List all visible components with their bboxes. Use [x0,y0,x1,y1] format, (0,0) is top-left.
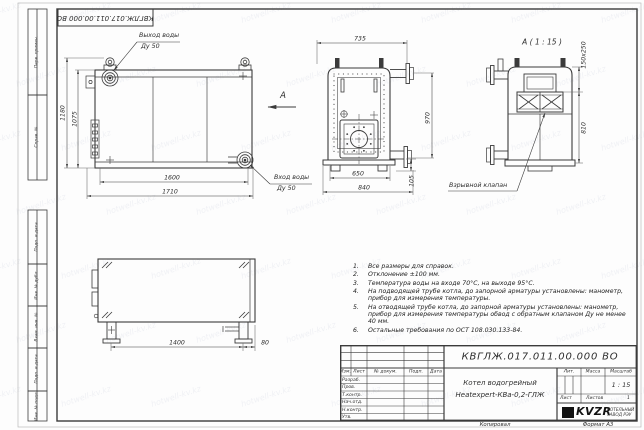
kopiroval-label: Копировал [480,422,511,428]
outlet-label: Выход воды [139,32,179,39]
tb-row-utv: Утв. [342,415,352,420]
note-item: 3.Температура воды на входе 70°С, на вых… [353,280,627,287]
tb-scale-label: Масштаб [610,370,632,375]
tb-row-razrab: Разраб. [342,378,360,383]
tb-col-list: Лист [353,370,365,375]
note-text: Температура воды на входе 70°С, на выход… [368,280,627,287]
side-dimensions [111,325,255,351]
dim-side-offset: 80 [261,340,269,347]
plan-dimensions [317,40,434,195]
kvzr-logo-icon [562,407,574,418]
note-item: 2.Отклонение ±100 мм. [353,271,627,278]
inlet-flange-icon [228,152,253,168]
inlet-label: Вход воды [274,174,309,181]
inlet-dn-label: Ду 50 [277,185,296,192]
note-number: 3. [353,280,368,287]
drawing-sheet: hotwell-kv.kzhotwell-kv.kzhotwell-kv.kzh… [0,0,644,430]
tb-sheet-label: Лист [560,396,572,401]
company-name: КОТЕЛЬНЫЙ ЗАВОД РЭУ [607,407,634,418]
note-number: 1. [353,263,368,270]
side-view [92,259,255,343]
tb-col-data: Дата [430,370,442,375]
tb-doc-number: КВГЛЖ.017.011.00.000 ВО [462,351,619,362]
frame-stamp: Справ. № [35,102,40,172]
note-item: 4.На подводящей трубе котла, до запорной… [353,288,627,303]
dim-front-width-outer: 1710 [162,189,178,196]
tb-row-nkontr: Н.контр. [342,408,363,413]
tb-col-podp: Подп. [409,370,423,375]
tb-row-nachotd: Нач.отд. [342,400,363,405]
dim-plan-width-inner: 650 [352,171,364,178]
tb-col-izm: Изм. [340,370,351,375]
note-item: 5.На отводящей трубе котла, до запорной … [353,304,627,326]
burner-flange-icon [332,114,386,164]
note-number: 6. [353,327,368,334]
frame-stamp: Перв. примен. [35,17,40,87]
tb-sheets-label: Листов [586,396,603,401]
outlet-dn-label: Ду 50 [141,43,160,50]
note-text: Все размеры для справок. [368,263,627,270]
tb-row-prov: Пров. [342,385,355,390]
tb-col-dokum: № докум. [374,370,397,375]
note-item: 6.Остальные требования по ОСТ 108.030.13… [353,327,627,334]
doc-number-stamp: КВГЛЖ.017.011.00.000 ВО [57,14,154,22]
tb-lit-label: Лит. [564,370,575,375]
technical-notes: 1.Все размеры для справок. 2.Отклонение … [353,263,627,335]
dim-plan-width-outer: 840 [358,185,370,192]
explosion-valve-label: Взрывной клапан [449,182,507,189]
dim-plan-width-top: 735 [354,36,366,43]
frame-stamp: Инв. № подл. [35,371,40,430]
dim-front-height-inner: 1075 [72,111,79,127]
dim-plan-height-right: 970 [425,112,432,124]
dim-side-length: 1400 [169,340,185,347]
title-block: КВГЛЖ.017.011.00.000 ВО Изм. Лист № доку… [340,345,637,421]
tb-mass-label: Масса [586,370,601,375]
note-text: Остальные требования по ОСТ 108.030.133-… [368,327,627,334]
section-dimensions [563,67,583,163]
note-text: Отклонение ±100 мм. [368,271,627,278]
outlet-flange-icon [102,70,118,86]
section-pipes-icon [487,66,509,165]
dim-front-width-inner: 1600 [164,175,180,182]
note-number: 5. [353,304,368,326]
explosion-valve-icon [517,92,563,112]
note-number: 2. [353,271,368,278]
tb-product-name-2: Heatexpert-КВа-0,2-ГЛЖ [456,391,545,399]
front-dimensions [64,58,253,199]
note-number: 4. [353,288,368,303]
note-item: 1.Все размеры для справок. [353,263,627,270]
dim-section-height: 810 [581,122,588,134]
format-label: Формат А3 [583,422,614,428]
plan-view [323,58,414,171]
dim-plan-pipe-offset: 105 [409,175,416,187]
dim-front-height-outer: 1180 [60,105,67,121]
note-text: На отводящей трубе котла, до запорной ар… [368,304,627,326]
section-view-a [448,58,575,191]
front-view [86,42,312,184]
lifting-lug-icon [104,58,251,70]
section-a-title: А ( 1 : 15 ) [522,38,562,47]
dim-section-valve-size: 150x250 [581,41,588,68]
company-line-2: ЗАВОД РЭУ [607,412,634,417]
tb-product-name-1: Котел водогрейный [463,379,537,387]
tb-row-tkontr: Т.контр. [342,393,362,398]
note-text: На подводящей трубе котла, до запорной а… [368,288,627,303]
view-a-mark: А [280,91,286,101]
plan-pipes-icon [390,64,414,168]
tb-scale-value: 1 : 15 [612,381,631,389]
tb-sheets-value: 1 [627,396,630,401]
